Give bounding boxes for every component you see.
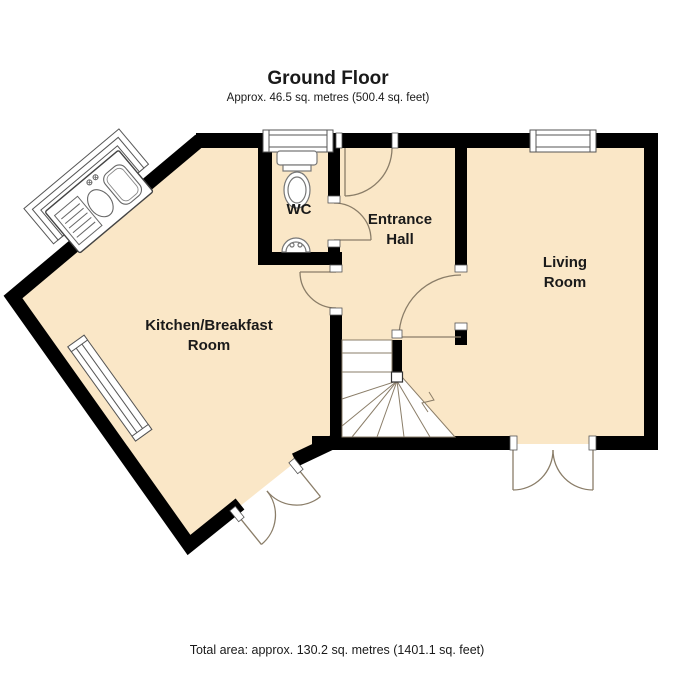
stair-newel-post — [392, 372, 403, 382]
bottom-wall-right — [596, 436, 658, 450]
page-title: Ground Floor — [267, 68, 389, 89]
right-wall — [644, 133, 658, 450]
living-room-label-line2: Room — [544, 274, 587, 291]
page-subtitle: Approx. 46.5 sq. metres (500.4 sq. feet) — [227, 92, 430, 104]
entrance-hall-label-line2: Hall — [386, 231, 414, 248]
living-room-window — [530, 130, 596, 152]
wc-right-wall-upper — [328, 148, 340, 196]
total-area-text: Total area: approx. 130.2 sq. metres (14… — [190, 643, 485, 657]
wc-label: WC — [287, 201, 312, 218]
stairwell-left-wall — [330, 315, 342, 437]
wc-left-wall — [258, 133, 272, 265]
entrance-hall-label-line1: Entrance — [368, 211, 432, 228]
wc-right-wall-lower — [328, 247, 340, 255]
kitchen-label-line1: Kitchen/Breakfast — [145, 317, 273, 334]
wc-window — [263, 130, 333, 152]
hall-living-wall — [455, 148, 467, 265]
floorplan-page: Ground Floor Approx. 46.5 sq. metres (50… — [0, 0, 700, 690]
bottom-wall-left — [312, 436, 510, 450]
kitchen-label-line2: Room — [188, 337, 231, 354]
living-room-label-line1: Living — [543, 254, 587, 271]
floorplan-canvas: Ground Floor Approx. 46.5 sq. metres (50… — [0, 0, 700, 690]
